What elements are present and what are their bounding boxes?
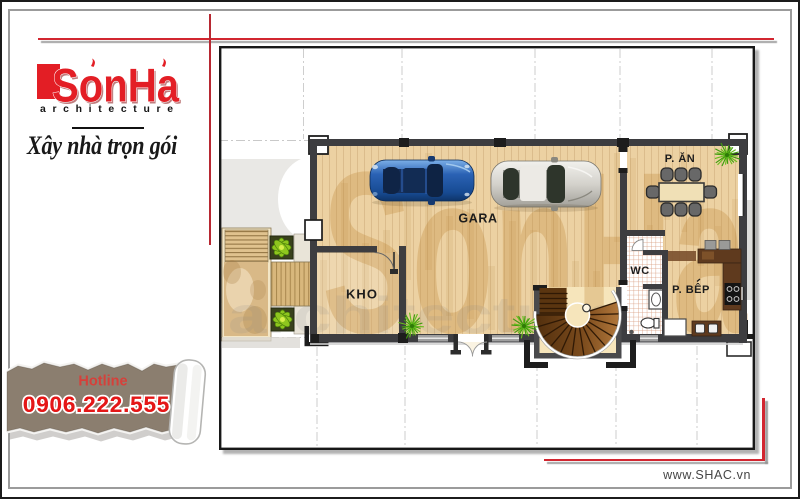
svg-text:Hotline: Hotline (78, 374, 127, 390)
svg-text:P. BÊP: P. BÊP (672, 283, 710, 296)
svg-text:0906.222.555: 0906.222.555 (23, 392, 170, 417)
svg-text:KHO: KHO (346, 287, 378, 302)
svg-text:GARA: GARA (458, 212, 497, 226)
svg-text:WC: WC (630, 265, 649, 277)
svg-text:SonHa: SonHa (52, 59, 180, 112)
svg-text:P. ĂN: P. ĂN (665, 152, 695, 165)
